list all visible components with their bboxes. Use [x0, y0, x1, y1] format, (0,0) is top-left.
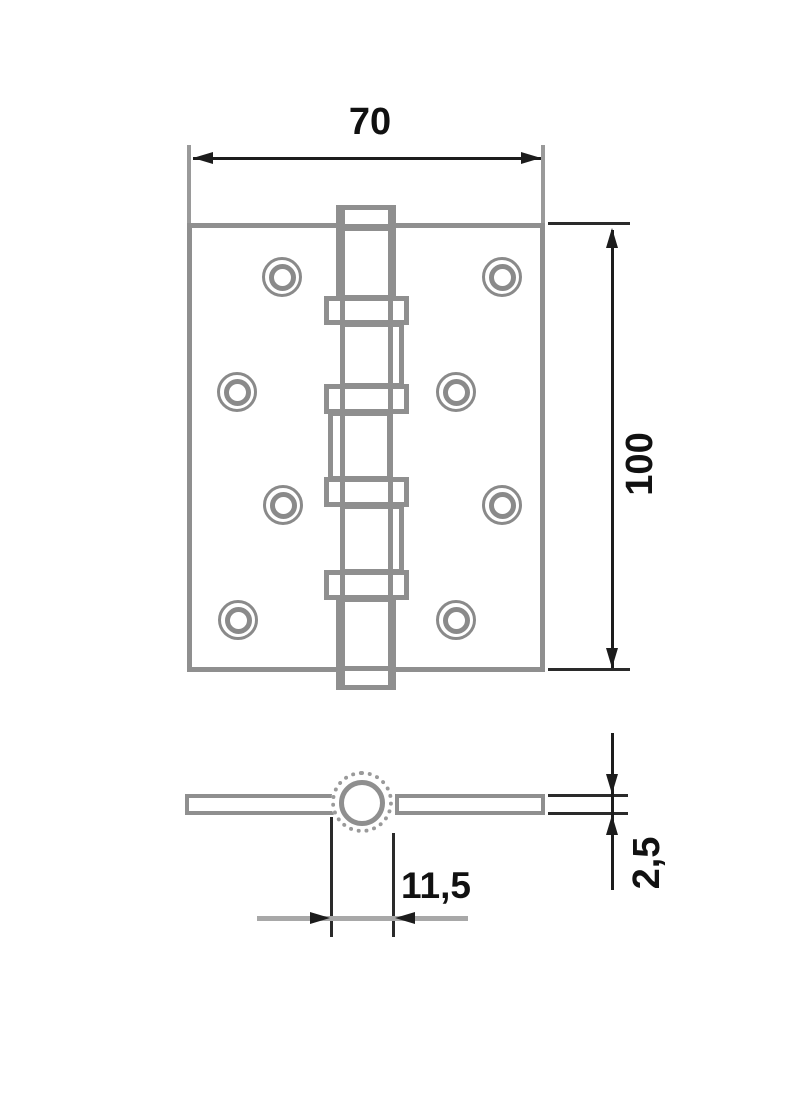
dim-2-5-extension-top [548, 794, 628, 797]
screw-hole-inner [443, 379, 470, 406]
dim-2-5-line [611, 733, 614, 890]
section-left-leaf [185, 794, 343, 815]
screw-hole [217, 372, 257, 412]
screw-hole-inner [489, 264, 516, 291]
screw-hole [482, 485, 522, 525]
dim-70-arrow-left [193, 152, 213, 164]
screw-hole-inner [269, 264, 296, 291]
screw-hole-inner [270, 492, 297, 519]
screw-hole-inner [443, 607, 470, 634]
dim-100-arrow-top [606, 228, 618, 248]
dim-100-arrow-bottom [606, 648, 618, 668]
screw-hole [218, 600, 258, 640]
screw-hole-inner [225, 607, 252, 634]
bearing-collar-3 [324, 477, 409, 507]
screw-hole [436, 600, 476, 640]
dim-70-extension-left [187, 145, 191, 223]
dim-70-arrow-right [521, 152, 541, 164]
screw-hole [263, 485, 303, 525]
pin-line-left [340, 207, 345, 688]
dim-11-5-label: 11,5 [396, 864, 476, 908]
section-right-leaf [395, 794, 545, 815]
pin-line-right [388, 207, 393, 688]
dim-2-5-arrow-top [606, 774, 618, 794]
knuckle-top [336, 226, 396, 300]
dim-100-line [611, 230, 614, 668]
knuckle-middle-left [328, 411, 392, 481]
bearing-collar-2 [324, 384, 409, 414]
dim-100-extension-bottom [548, 668, 630, 671]
screw-hole [436, 372, 476, 412]
dim-11-5-arrow-right [395, 912, 415, 924]
screw-hole-inner [224, 379, 251, 406]
dim-100-label: 100 [618, 419, 662, 509]
dim-70-line [193, 157, 541, 160]
dim-70-extension-right [541, 145, 545, 223]
bearing-collar-4 [324, 570, 409, 600]
pin-bottom-cap [336, 666, 396, 690]
section-pin-circle [339, 780, 385, 826]
knuckle-bottom [336, 597, 396, 671]
dim-2-5-arrow-bottom [606, 815, 618, 835]
dim-100-extension-top [548, 222, 630, 225]
hinge-drawing-canvas: 70 100 11,5 2,5 [0, 0, 800, 1099]
bearing-collar-1 [324, 296, 409, 325]
dim-11-5-arrow-left [310, 912, 330, 924]
knuckle-upper-right [340, 322, 404, 388]
knuckle-lower-right [340, 504, 404, 574]
screw-hole-inner [489, 492, 516, 519]
dim-70-label: 70 [330, 100, 410, 144]
dim-11-5-line [257, 916, 468, 921]
dim-2-5-label: 2,5 [625, 823, 669, 903]
screw-hole [262, 257, 302, 297]
screw-hole [482, 257, 522, 297]
